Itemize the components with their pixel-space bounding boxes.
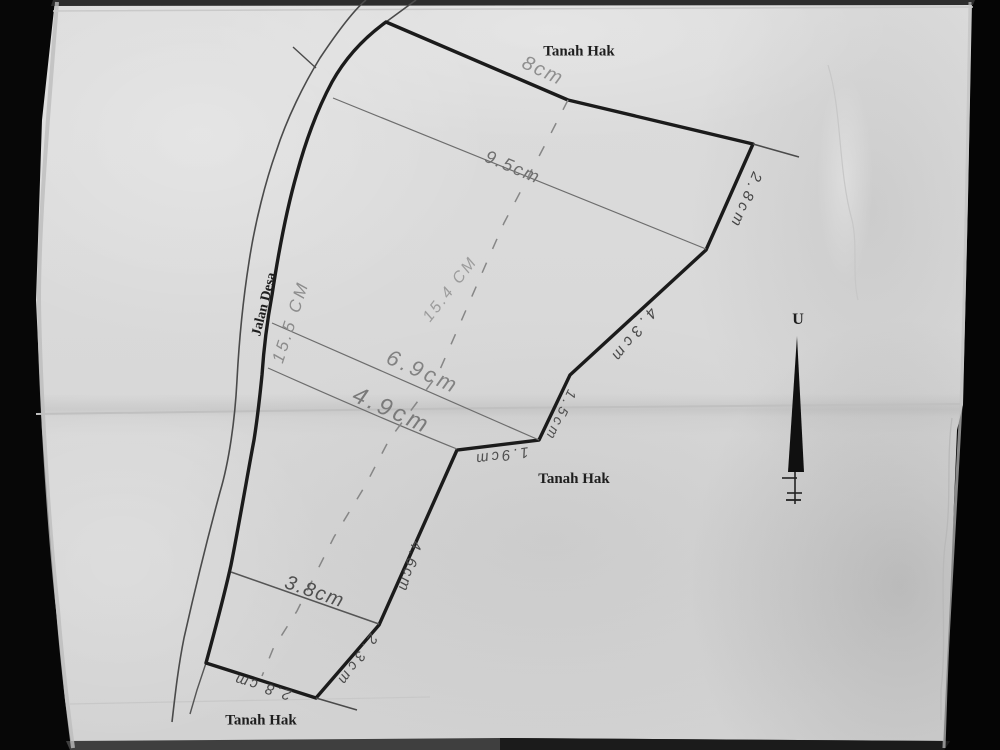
svg-text:15.4 CM: 15.4 CM (420, 253, 481, 325)
svg-text:Tanah Hak: Tanah Hak (225, 713, 297, 729)
svg-text:U: U (792, 311, 804, 328)
svg-text:2.3cm: 2.3cm (332, 630, 381, 691)
svg-text:9.5cm: 9.5cm (482, 146, 544, 187)
svg-text:3.8cm: 3.8cm (282, 571, 348, 612)
svg-text:Tanah Hak: Tanah Hak (543, 44, 615, 60)
svg-text:6.9cm: 6.9cm (383, 344, 464, 398)
svg-text:Jalan Desa: Jalan Desa (249, 271, 279, 338)
svg-text:4.6cm: 4.6cm (394, 539, 425, 595)
svg-text:4.9cm: 4.9cm (348, 381, 435, 439)
svg-text:2.8cm: 2.8cm (726, 169, 766, 233)
svg-text:Tanah Hak: Tanah Hak (538, 471, 610, 487)
